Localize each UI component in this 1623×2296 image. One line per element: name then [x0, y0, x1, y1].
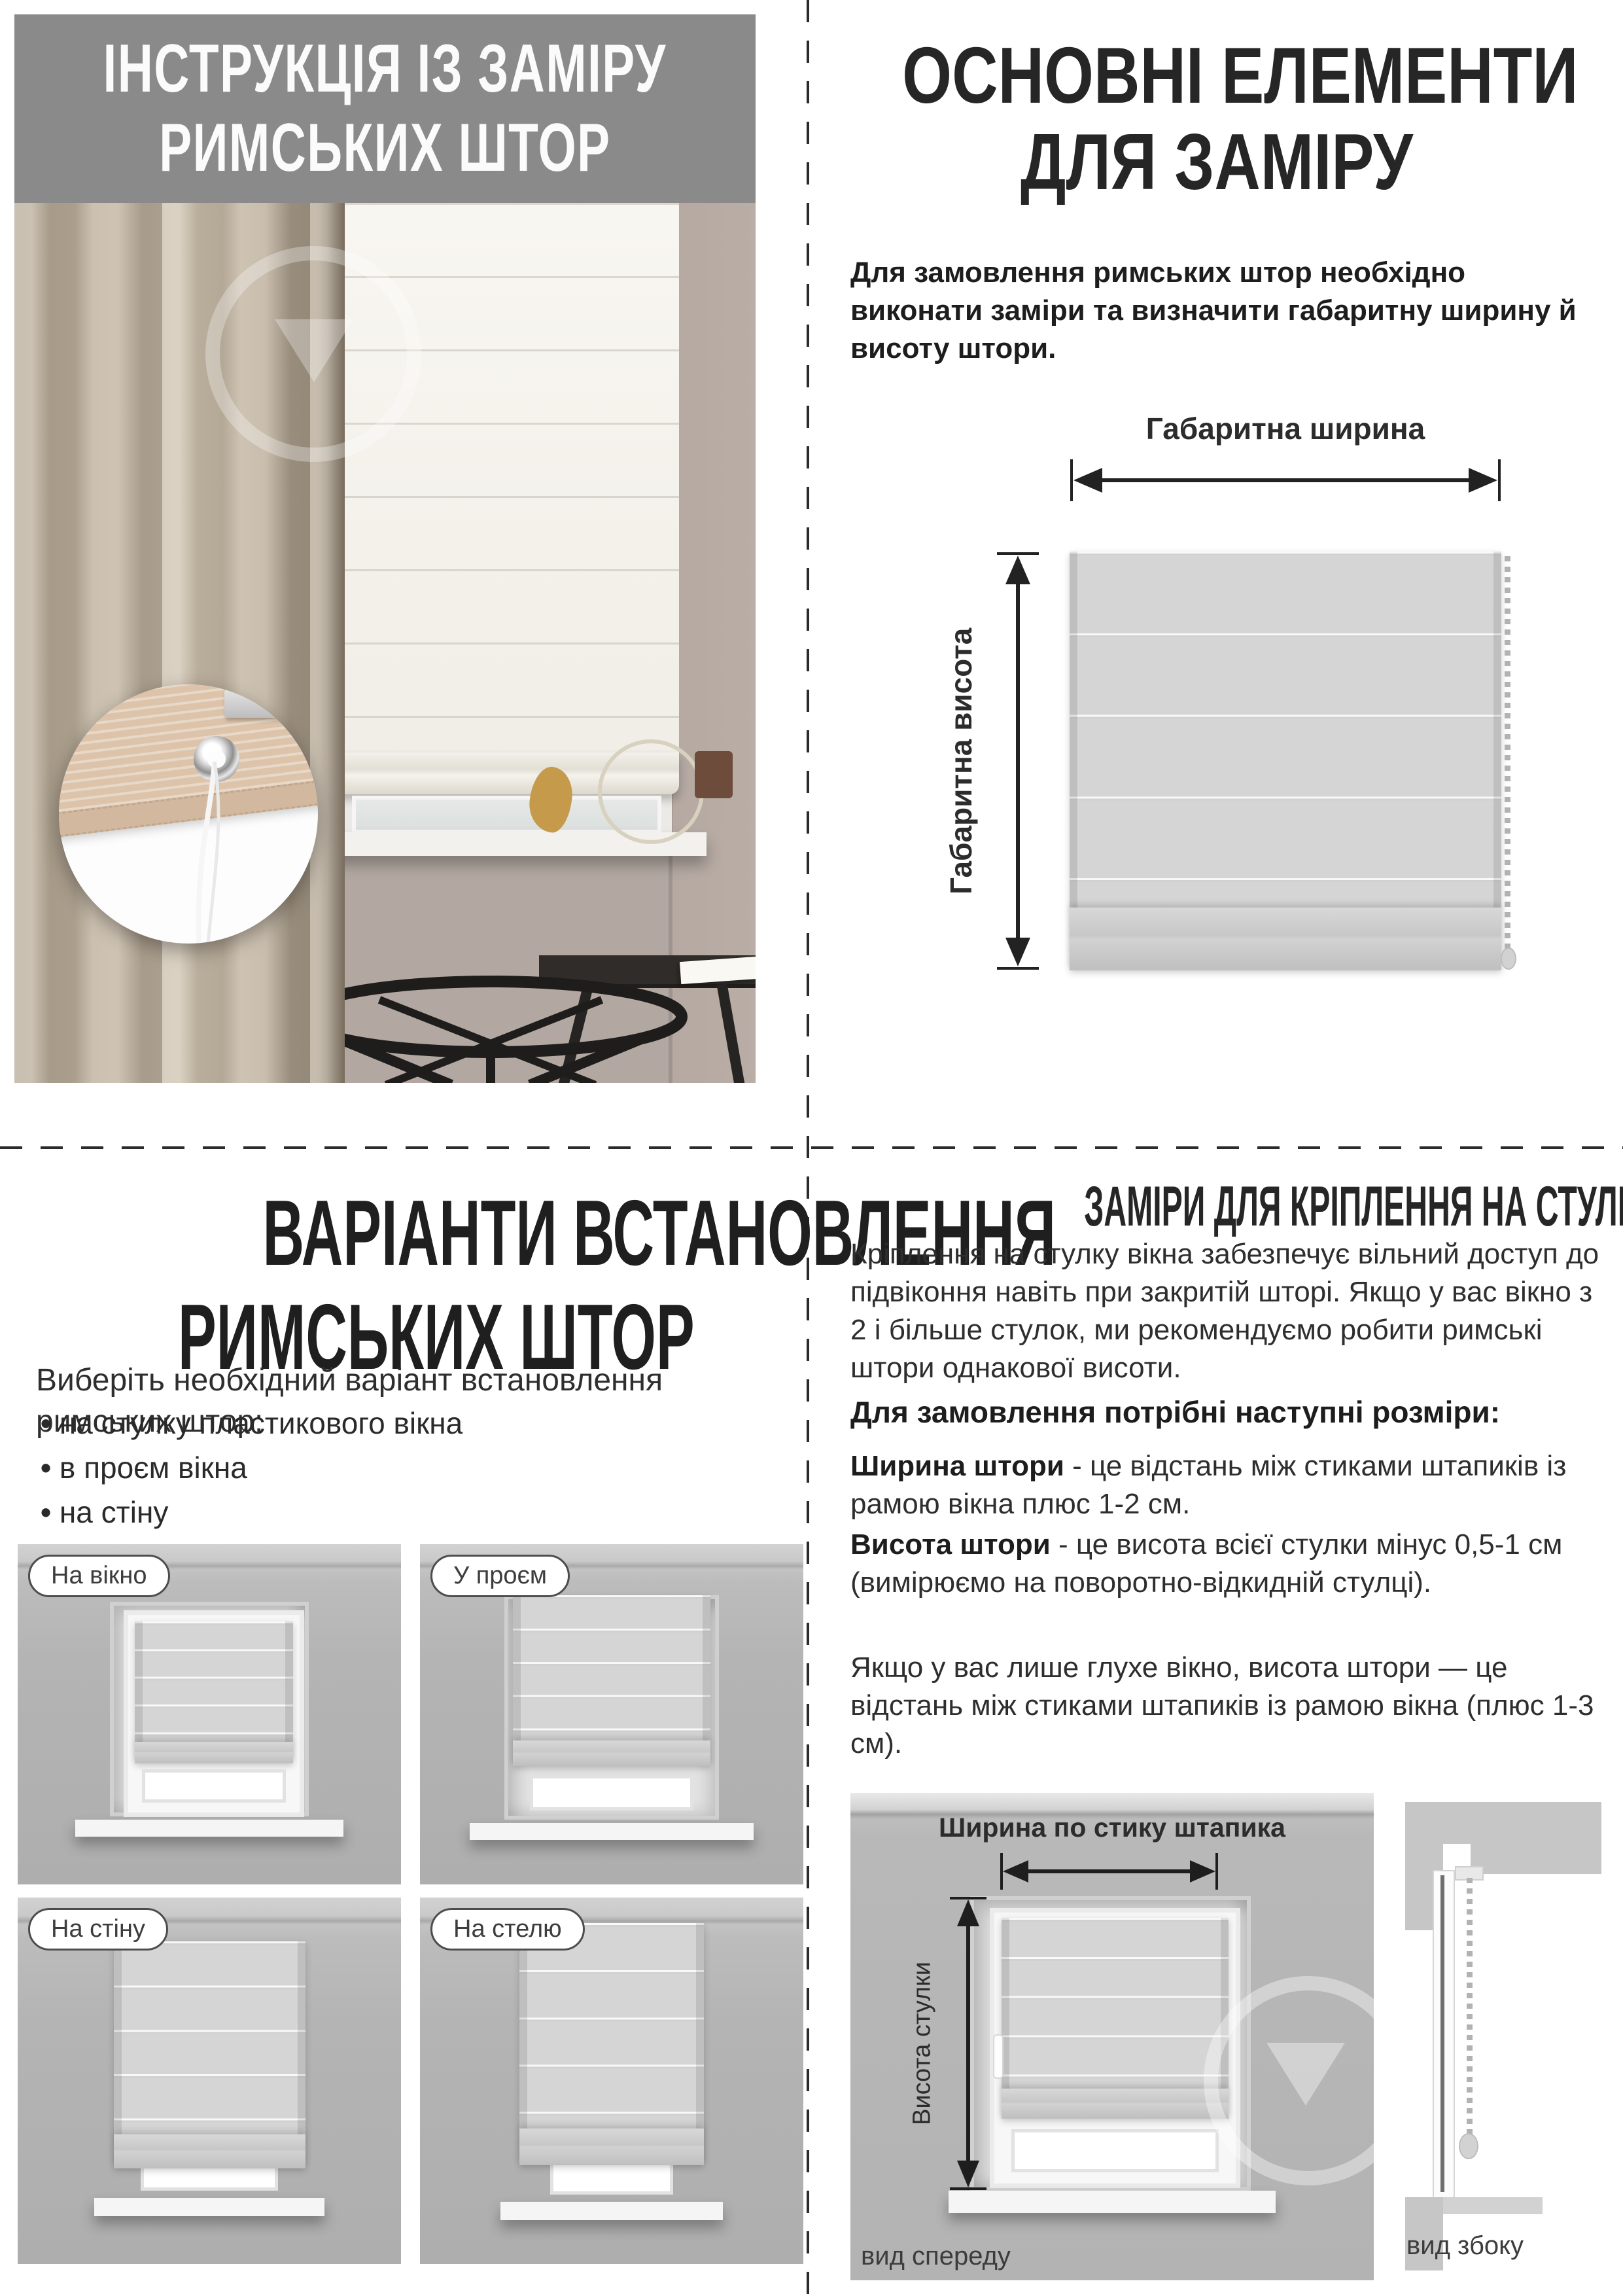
page-title-line2: РИМСЬКИХ ШТОР — [159, 109, 610, 188]
card-glass — [142, 1769, 286, 1803]
sizes-heading: Для замовлення потрібні наступні розміри… — [850, 1392, 1609, 1432]
card-blind — [135, 1621, 292, 1763]
top-right-intro: Для замовлення римських штор необхідно в… — [850, 254, 1603, 368]
inset-cord — [59, 684, 318, 944]
sash-width-arrow — [1000, 1853, 1219, 1890]
front-glass — [1011, 2129, 1219, 2172]
card-glass — [530, 1775, 693, 1811]
card-sill — [94, 2198, 324, 2216]
width-term: Ширина штори — [850, 1450, 1064, 1482]
blind-fabric — [1070, 552, 1501, 970]
option-card-ceiling: На стелю — [420, 1898, 803, 2264]
photo-right-wall — [669, 203, 756, 1083]
side-chain — [1467, 1878, 1473, 2153]
bullet-item: на стіну — [41, 1494, 462, 1530]
top-left-header: ІНСТРУКЦІЯ ІЗ ЗАМІРУ РИМСЬКИХ ШТОР — [14, 14, 756, 203]
side-chain-weight — [1459, 2133, 1478, 2159]
blind-chain — [1505, 556, 1510, 955]
option-card-window: На вікно — [18, 1544, 401, 1884]
top-right-title: ОСНОВНІ ЕЛЕМЕНТИ ДЛЯ ЗАМІРУ — [818, 33, 1616, 205]
photo-chair — [288, 974, 693, 1083]
front-blind — [1002, 1918, 1229, 2118]
card-blind — [114, 1941, 305, 2168]
option-label: У проєм — [430, 1555, 570, 1597]
option-card-opening: У проєм — [420, 1544, 803, 1884]
card-window-niche — [504, 1595, 719, 1820]
front-niche — [970, 1896, 1251, 2191]
roman-blind-room-photo — [14, 203, 756, 1083]
bullet-item: на стулку пластикового вікна — [41, 1405, 462, 1441]
width-definition: Ширина штори - це відстань між стиками ш… — [850, 1447, 1609, 1523]
overall-height-label: Габаритна висота — [935, 552, 986, 970]
grommet-detail-inset — [59, 684, 318, 944]
photo-roman-blind — [334, 203, 679, 752]
option-label: На стіну — [28, 1908, 168, 1951]
front-sash — [990, 1908, 1240, 2188]
side-wall-step — [1471, 1843, 1601, 1874]
card-blind — [513, 1595, 710, 1766]
height-term: Висота штори — [850, 1528, 1051, 1561]
sash-height-label: Висота стулки — [901, 1896, 943, 2191]
bullet-item: в проєм вікна — [41, 1450, 462, 1485]
card-sill — [75, 1820, 343, 1837]
width-arrow — [1070, 459, 1501, 501]
front-view-figure: Ширина по стику штапика Висота стулки ви… — [850, 1793, 1374, 2280]
side-view-figure: вид збоку — [1393, 1793, 1613, 2280]
window-handle-icon — [993, 2034, 1003, 2079]
page-title-line1: ІНСТРУКЦІЯ ІЗ ЗАМІРУ — [103, 29, 667, 109]
bottom-right-title-text: ЗАМІРИ ДЛЯ КРІПЛЕННЯ НА СТУЛКУ ВІКНА — [1084, 1174, 1623, 1239]
card-blind — [519, 1923, 703, 2165]
front-sill — [949, 2191, 1276, 2213]
overall-size-diagram: Габаритна ширина Габаритна висота — [929, 411, 1596, 987]
photo-pen-cup — [695, 751, 733, 798]
top-right-title-line1: ОСНОВНІ ЕЛЕМЕНТИ — [902, 33, 1578, 119]
sash-height-arrow — [950, 1896, 986, 2191]
option-label: На стелю — [430, 1908, 585, 1951]
front-caption: вид спереду — [861, 2242, 1011, 2271]
height-arrow — [997, 552, 1039, 970]
card-window-sash — [124, 1610, 304, 1816]
height-definition: Висота штори - це висота всієї стулки мі… — [850, 1526, 1609, 1602]
horizontal-dashed-divider — [0, 1146, 1623, 1149]
photo-round-mirror — [598, 739, 704, 844]
sash-paragraph: Кріплення на стулку вікна забезпечує віл… — [850, 1235, 1609, 1387]
bottom-left-title: ВАРІАНТИ ВСТАНОВЛЕННЯ РИМСЬКИХ ШТОР — [20, 1181, 792, 1389]
card-sill — [500, 2202, 723, 2220]
option-label: На вікно — [28, 1555, 170, 1597]
chain-weight — [1501, 947, 1516, 970]
fixed-window-note: Якщо у вас лише глухе вікно, висота штор… — [850, 1649, 1609, 1763]
instruction-sheet: ІНСТРУКЦІЯ ІЗ ЗАМІРУ РИМСЬКИХ ШТОР — [0, 0, 1623, 2296]
card-sill — [470, 1823, 754, 1840]
card-window-niche — [110, 1602, 309, 1816]
bottom-right-title: ЗАМІРИ ДЛЯ КРІПЛЕННЯ НА СТУЛКУ ВІКНА — [818, 1174, 1616, 1239]
top-right-title-line2: ДЛЯ ЗАМІРУ — [1021, 119, 1413, 205]
photo-curtain — [14, 203, 345, 1083]
option-card-wall: На стіну — [18, 1898, 401, 2264]
side-sash-seal — [1440, 1875, 1444, 2192]
sash-width-label: Ширина по стику штапика — [916, 1812, 1308, 1843]
overall-width-label: Габаритна ширина — [1070, 411, 1501, 446]
side-caption: вид збоку — [1406, 2231, 1524, 2261]
